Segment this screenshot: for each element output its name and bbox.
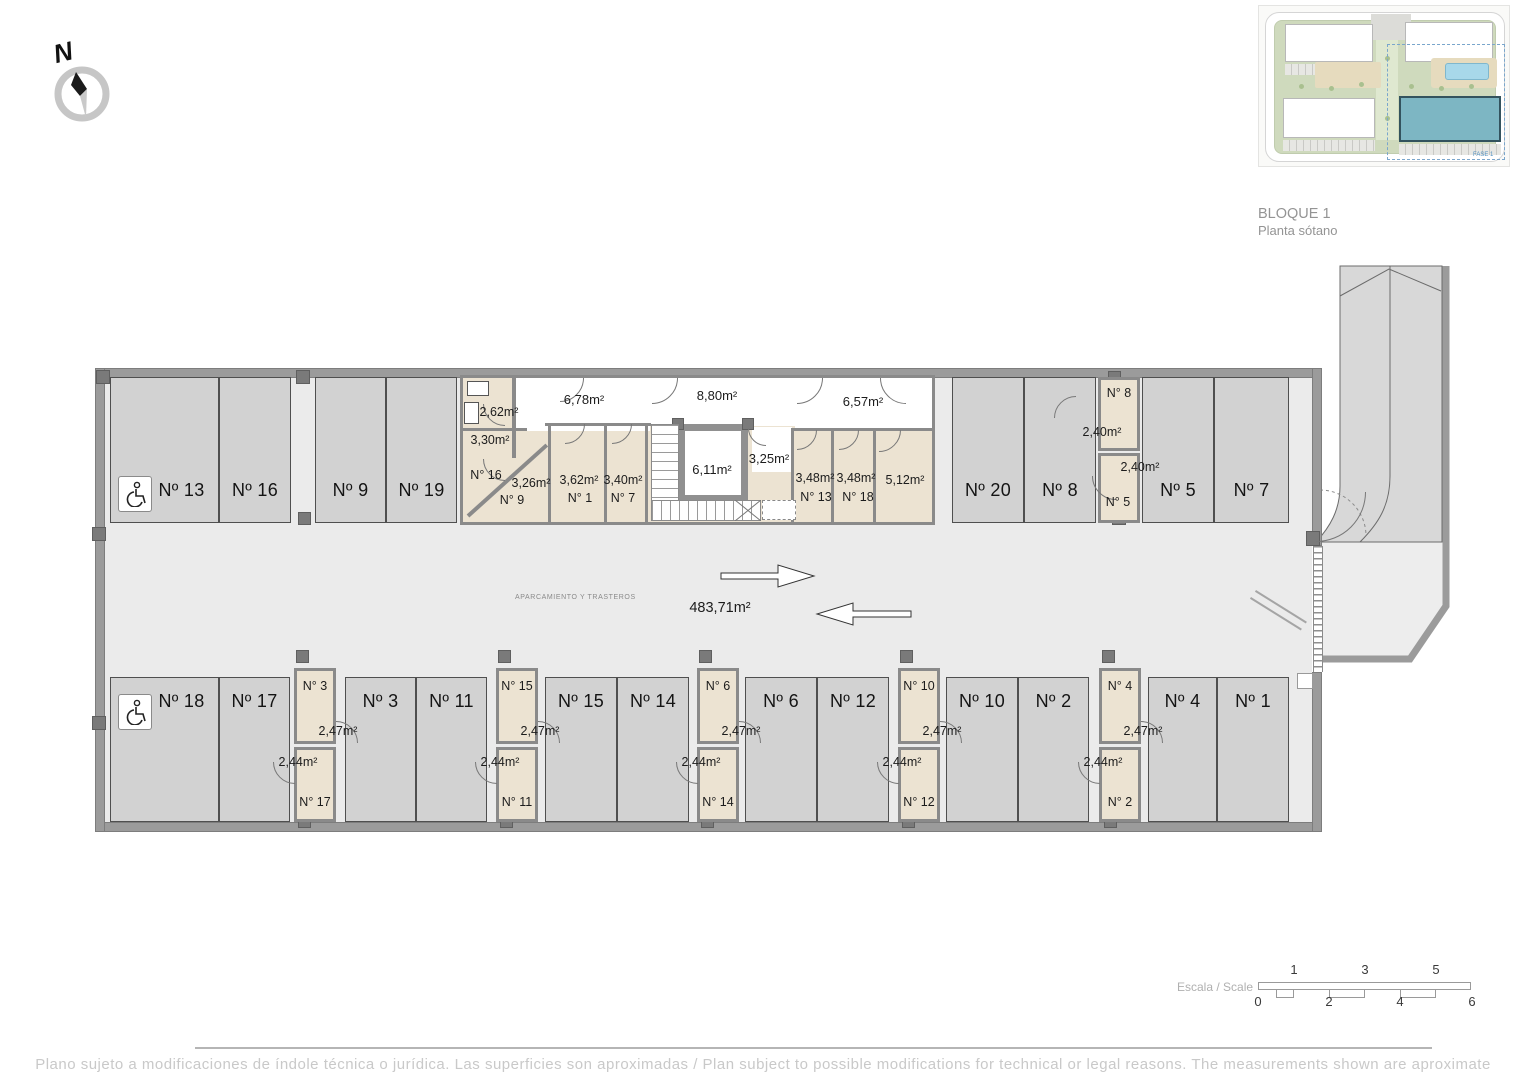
parking-stall-label: Nº 5 bbox=[1143, 480, 1213, 501]
ramp-gate-grille bbox=[1313, 546, 1323, 672]
parking-stall-label: Nº 16 bbox=[220, 480, 290, 501]
pillar bbox=[296, 370, 310, 384]
parking-stall-label: Nº 7 bbox=[1215, 480, 1288, 501]
storeroom-name: N° 17 bbox=[299, 795, 330, 809]
wall-left bbox=[95, 368, 105, 832]
storeroom-name: N° 1 bbox=[568, 491, 592, 505]
scale-tick: 0 bbox=[1254, 994, 1261, 1009]
scale-tick: 3 bbox=[1361, 962, 1368, 977]
parking-stall: Nº 4 bbox=[1148, 677, 1217, 822]
partition-wall bbox=[512, 428, 516, 458]
storeroom-area: 2,47m² bbox=[521, 724, 560, 738]
storeroom-area: 3,40m² bbox=[604, 473, 643, 487]
parking-stall: Nº 18 bbox=[110, 677, 219, 822]
storeroom-area: 3,48m² bbox=[796, 471, 835, 485]
storeroom-name: N° 8 bbox=[1107, 386, 1131, 400]
scale-label: Escala / Scale bbox=[1177, 980, 1253, 994]
scale-segment bbox=[1400, 990, 1436, 998]
parking-stall: Nº 3 bbox=[345, 677, 416, 822]
parking-stall-label: Nº 19 bbox=[387, 480, 456, 501]
site-trees bbox=[1299, 84, 1304, 89]
site-phase-boundary bbox=[1387, 44, 1505, 160]
partition-wall bbox=[548, 423, 551, 523]
parking-stall-label: Nº 14 bbox=[618, 691, 688, 712]
storeroom-area: 2,47m² bbox=[319, 724, 358, 738]
vehicle-ramp bbox=[1300, 258, 1460, 673]
partition-wall bbox=[545, 423, 651, 426]
parking-stall: Nº 17 bbox=[219, 677, 290, 822]
footer-divider bbox=[195, 1047, 1432, 1049]
storeroom-name: N° 14 bbox=[702, 795, 733, 809]
site-building-bottom-left bbox=[1283, 98, 1375, 138]
disclaimer-text: Plano sujeto a modificaciones de índole … bbox=[35, 1056, 1491, 1073]
corridor-area: 6,57m² bbox=[843, 394, 883, 409]
corridor-area: 8,80m² bbox=[697, 388, 737, 403]
parking-stall-label: Nº 9 bbox=[316, 480, 385, 501]
parking-stall: Nº 6 bbox=[745, 677, 817, 822]
parking-stall-label: Nº 2 bbox=[1019, 691, 1088, 712]
storeroom-area: 5,12m² bbox=[886, 473, 925, 487]
parking-stall: Nº 8 bbox=[1024, 377, 1096, 523]
pillar bbox=[298, 512, 311, 525]
parking-stall: Nº 16 bbox=[219, 377, 291, 523]
parking-stall-label: Nº 15 bbox=[546, 691, 616, 712]
utility-meter-icon bbox=[464, 402, 479, 424]
partition-wall bbox=[645, 423, 648, 523]
parking-stall-label: Nº 18 bbox=[111, 691, 218, 712]
pillar bbox=[900, 650, 913, 663]
site-phase-label: FASE 1 bbox=[1473, 152, 1493, 158]
scale-tick: 1 bbox=[1290, 962, 1297, 977]
site-parking-strip bbox=[1283, 140, 1375, 151]
corridor-area: 6,78m² bbox=[564, 392, 604, 407]
site-building-top-left bbox=[1285, 24, 1373, 62]
storeroom-area: 2,44m² bbox=[1084, 755, 1123, 769]
storeroom-area: 2,62m² bbox=[480, 405, 519, 419]
zone-label: APARCAMIENTO Y TRASTEROS bbox=[515, 594, 636, 601]
storeroom-area: 2,40m² bbox=[1121, 460, 1160, 474]
parking-stall: Nº 10 bbox=[946, 677, 1018, 822]
compass: N bbox=[42, 32, 122, 128]
parking-stall-label: Nº 13 bbox=[111, 480, 218, 501]
parking-stall: Nº 19 bbox=[386, 377, 457, 523]
lobby-area: 3,25m² bbox=[749, 451, 789, 466]
scale-rule bbox=[1258, 982, 1471, 990]
direction-arrow-right bbox=[720, 564, 816, 588]
parking-stall-label: Nº 17 bbox=[220, 691, 289, 712]
parking-stall: Nº 1 bbox=[1217, 677, 1289, 822]
storeroom-name: N° 15 bbox=[501, 679, 532, 693]
parking-stall: Nº 13 bbox=[110, 377, 219, 523]
storeroom-name: N° 18 bbox=[842, 490, 873, 504]
storage-pair: N° 10 2,47m² 2,44m² N° 12 bbox=[898, 668, 940, 822]
storeroom-name: N° 11 bbox=[502, 795, 532, 809]
parking-stall: Nº 20 bbox=[952, 377, 1024, 523]
scale-tick: 6 bbox=[1468, 994, 1475, 1009]
parking-stall-label: Nº 1 bbox=[1218, 691, 1288, 712]
scale-tick: 5 bbox=[1432, 962, 1439, 977]
block-title: BLOQUE 1 bbox=[1258, 206, 1331, 222]
pillar bbox=[92, 716, 106, 730]
scale-segment bbox=[1276, 990, 1294, 998]
storeroom-name: N° 3 bbox=[303, 679, 327, 693]
storeroom-area: 2,47m² bbox=[1124, 724, 1163, 738]
total-area-label: 483,71m² bbox=[689, 600, 750, 616]
parking-stall: Nº 7 bbox=[1214, 377, 1289, 523]
parking-stall-label: Nº 12 bbox=[818, 691, 888, 712]
pillar bbox=[1102, 650, 1115, 663]
pillar bbox=[96, 370, 110, 384]
elevator-area: 6,11m² bbox=[692, 462, 732, 477]
storage-pair: N° 6 2,47m² 2,44m² N° 14 bbox=[697, 668, 739, 822]
parking-stall-label: Nº 8 bbox=[1025, 480, 1095, 501]
partition-wall bbox=[463, 428, 527, 431]
storeroom-name: N° 6 bbox=[706, 679, 730, 693]
storeroom-name: N° 7 bbox=[611, 491, 635, 505]
pillar bbox=[296, 650, 309, 663]
parking-stall-label: Nº 10 bbox=[947, 691, 1017, 712]
parking-stall-label: Nº 3 bbox=[346, 691, 415, 712]
service-box bbox=[1297, 673, 1313, 689]
parking-stall: Nº 9 bbox=[315, 377, 386, 523]
storeroom-name: N° 10 bbox=[903, 679, 934, 693]
parking-stall-label: Nº 4 bbox=[1149, 691, 1216, 712]
pillar bbox=[92, 527, 106, 541]
wall-right-lower bbox=[1312, 672, 1322, 832]
direction-arrow-left bbox=[813, 602, 912, 626]
parking-stall: Nº 15 bbox=[545, 677, 617, 822]
storeroom-area: 2,40m² bbox=[1083, 425, 1122, 439]
storeroom-name: N° 12 bbox=[903, 795, 934, 809]
pillar bbox=[498, 650, 511, 663]
storeroom-area: 2,44m² bbox=[481, 755, 520, 769]
storage-pair: N° 3 2,47m² 2,44m² N° 17 bbox=[294, 668, 336, 822]
pillar bbox=[699, 650, 712, 663]
scale-tick: 2 bbox=[1325, 994, 1332, 1009]
parking-stall: Nº 14 bbox=[617, 677, 689, 822]
parking-stall-label: Nº 6 bbox=[746, 691, 816, 712]
parking-stall: Nº 11 bbox=[416, 677, 487, 822]
storeroom-area: 2,47m² bbox=[923, 724, 962, 738]
storeroom-name: N° 16 bbox=[470, 468, 501, 482]
utility-meter-icon bbox=[467, 381, 489, 396]
stairs-cross bbox=[735, 500, 761, 521]
storeroom-name: N° 4 bbox=[1108, 679, 1132, 693]
storeroom-name: N° 5 bbox=[1106, 495, 1130, 509]
parking-stall-label: Nº 11 bbox=[417, 691, 486, 712]
scale-bar: Escala / Scale 1 3 5 0 2 4 6 bbox=[1177, 960, 1489, 1012]
stairs-flight bbox=[651, 424, 679, 502]
floor-title: Planta sótano bbox=[1258, 223, 1338, 238]
storeroom-area: 3,30m² bbox=[471, 433, 510, 447]
site-amenity-deck bbox=[1315, 62, 1381, 88]
parking-stall: Nº 12 bbox=[817, 677, 889, 822]
storeroom-area: 2,44m² bbox=[682, 755, 721, 769]
compass-north-letter: N bbox=[50, 35, 77, 69]
storeroom-area: 2,44m² bbox=[279, 755, 318, 769]
parking-stall: Nº 2 bbox=[1018, 677, 1089, 822]
storage-pair: N° 15 2,47m² 2,44m² N° 11 bbox=[496, 668, 538, 822]
scale-segment bbox=[1329, 990, 1365, 998]
storeroom-area: 2,44m² bbox=[883, 755, 922, 769]
storeroom-area: 3,62m² bbox=[560, 473, 599, 487]
storeroom-area: 3,48m² bbox=[837, 471, 876, 485]
stairs-dashed bbox=[762, 500, 796, 520]
site-plan-thumbnail: FASE 1 bbox=[1258, 5, 1510, 167]
parking-stall-label: Nº 20 bbox=[953, 480, 1023, 501]
scale-tick: 4 bbox=[1396, 994, 1403, 1009]
floor-plan-sheet: N FASE 1 BLOQUE 1 Planta sótano bbox=[0, 0, 1526, 1080]
storeroom-area: 3,26m² bbox=[512, 476, 551, 490]
storeroom-name: N° 2 bbox=[1108, 795, 1132, 809]
storage-pair: N° 4 2,47m² 2,44m² N° 2 bbox=[1099, 668, 1141, 822]
storeroom-name: N° 13 bbox=[800, 490, 831, 504]
storeroom-name: N° 9 bbox=[500, 493, 524, 507]
storeroom-area: 2,47m² bbox=[722, 724, 761, 738]
parking-stall: Nº 5 bbox=[1142, 377, 1214, 523]
north-arrow-icon: N bbox=[42, 32, 122, 128]
